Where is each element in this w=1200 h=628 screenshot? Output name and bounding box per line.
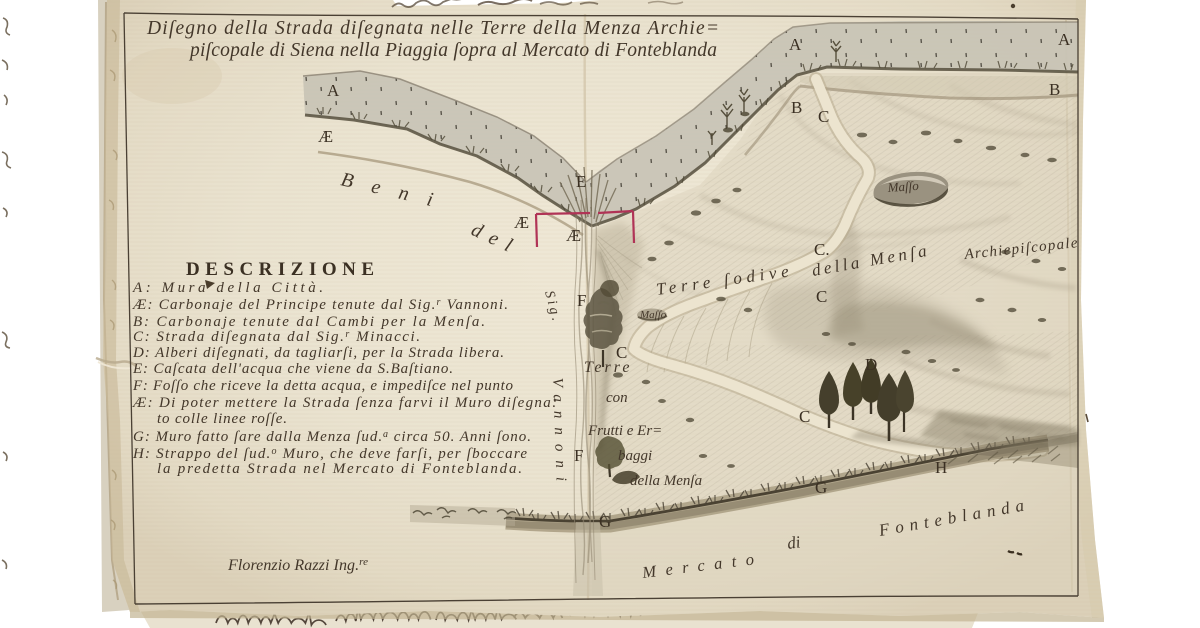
svg-text:B: B — [791, 98, 802, 117]
svg-text:Frutti e Er=: Frutti e Er= — [587, 423, 662, 439]
svg-text:DESCRIZIONE: DESCRIZIONE — [186, 259, 380, 280]
svg-text:G: G — [815, 478, 827, 497]
svg-text:A: Mura della Città.: A: Mura della Città. — [132, 280, 323, 296]
svg-text:baggi: baggi — [618, 448, 652, 464]
svg-text:Florenzio Razzi Ing.re: Florenzio Razzi Ing.re — [227, 556, 368, 574]
svg-text:la predetta Strada nel Merca: la predetta Strada nel Mercato di Fonteb… — [157, 461, 522, 477]
svg-text:Æ: Æ — [514, 213, 529, 232]
svg-text:F: Foſſo che riceve la det: F: Foſſo che riceve la detta acqua, e im… — [132, 378, 514, 394]
svg-text:con: con — [606, 390, 628, 406]
svg-text:C: C — [818, 107, 829, 126]
svg-text:piſcopale di Siena nella P: piſcopale di Siena nella Piaggia ſopra a… — [188, 40, 717, 61]
svg-text:G: G — [599, 512, 611, 531]
svg-text:E: Caſcata dell'acqua che vi: E: Caſcata dell'acqua che viene da S.Baſ… — [132, 361, 453, 377]
svg-text:Æ: Carbonaje del Principe t: Æ: Carbonaje del Principe tenute dal Sig… — [131, 297, 508, 313]
svg-text:A: A — [327, 81, 340, 100]
svg-text:della Menſa: della Menſa — [630, 473, 702, 489]
svg-text:C: Strada diſegnata dal: C: Strada diſegnata dal Sig.r Minacci. — [133, 329, 420, 345]
svg-text:Terre: Terre — [584, 359, 633, 376]
svg-text:C: C — [816, 287, 827, 306]
svg-text:H: Strappo del ſud.o Muro, c: H: Strappo del ſud.o Muro, che deve farſ… — [132, 446, 527, 462]
svg-text:F: F — [577, 291, 586, 310]
svg-text:D: Alberi diſegnati, da tagli: D: Alberi diſegnati, da tagliarſi, per l… — [132, 345, 504, 361]
svg-text:F: F — [574, 446, 583, 465]
svg-text:E: E — [576, 172, 586, 191]
svg-text:A: A — [1058, 30, 1071, 49]
svg-text:D: D — [865, 355, 877, 374]
svg-text:C: C — [799, 407, 810, 426]
svg-text:A: A — [789, 35, 802, 54]
svg-text:Æ: Æ — [566, 226, 581, 245]
svg-text:G: Muro fatto ſare dalla Me: G: Muro fatto ſare dalla Menza ſud.a cir… — [133, 429, 531, 445]
svg-text:H: H — [935, 458, 947, 477]
svg-text:Æ: Di poter mettere la Strad: Æ: Di poter mettere la Strada ſenza farv… — [131, 395, 557, 411]
svg-text:Maſſo: Maſſo — [886, 178, 920, 195]
svg-text:Diſegno della Strada diſegn: Diſegno della Strada diſegnata nelle Ter… — [146, 18, 719, 39]
svg-text:B: B — [1049, 80, 1060, 99]
svg-text:Æ: Æ — [318, 127, 333, 146]
svg-text:Maſſo: Maſſo — [639, 309, 667, 321]
svg-text:C.: C. — [814, 240, 830, 259]
svg-text:to colle linee roſſe.: to colle linee roſſe. — [157, 411, 287, 427]
